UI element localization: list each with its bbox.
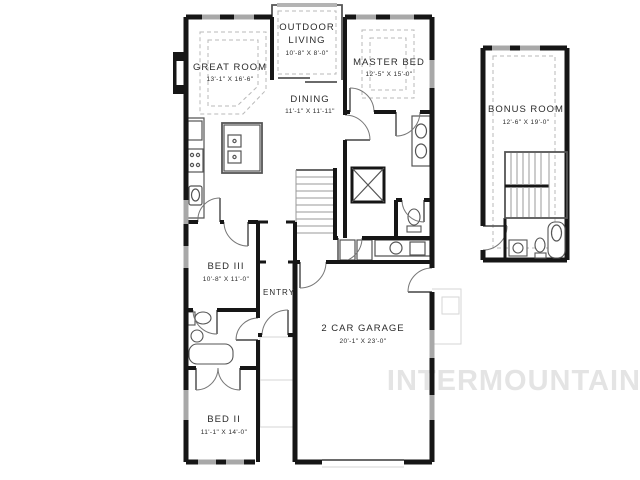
laundry-appliances <box>340 240 430 260</box>
kitchen-island <box>222 123 262 173</box>
room-dims-outdoor-living: 10'-8" X 8'-0" <box>285 50 328 57</box>
room-dims-great-room: 13'-1" X 16'-6" <box>206 76 253 83</box>
room-dims-bonus-room: 12'-6" X 19'-0" <box>502 119 549 126</box>
room-dims-master-bed: 12'-5" X 15'-0" <box>365 71 412 78</box>
room-label-outdoor-living-2: LIVING <box>288 35 325 46</box>
room-label-bed-2: BED II <box>207 414 240 425</box>
room-label-bonus-room: BONUS ROOM <box>488 104 564 115</box>
room-label-garage: 2 CAR GARAGE <box>321 323 404 334</box>
master-shower <box>352 168 384 202</box>
master-vanity <box>412 116 430 166</box>
bonus-stairs <box>505 152 567 218</box>
room-dims-garage: 20'-1" X 23'-0" <box>339 338 386 345</box>
watermark-text: INTERMOUNTAIN <box>387 365 640 397</box>
master-toilet-icon <box>407 209 421 232</box>
room-label-outdoor-living-1: OUTDOOR <box>279 22 335 33</box>
room-label-entry: ENTRY <box>263 288 295 297</box>
room-label-bed-3: BED III <box>207 261 244 272</box>
kitchen-counter <box>186 118 204 218</box>
floor-plan-image: INTERMOUNTAIN <box>0 0 640 480</box>
room-label-master-bed: MASTER BED <box>353 57 425 68</box>
room-label-great-room: GREAT ROOM <box>193 62 267 73</box>
main-stairs <box>296 170 335 238</box>
room-label-dining: DINING <box>290 94 329 105</box>
floor-plan-svg: INTERMOUNTAIN <box>0 0 640 480</box>
room-dims-bed-2: 11'-1" X 14'-0" <box>201 429 248 436</box>
room-dims-dining: 11'-1" X 11'-11" <box>285 108 335 115</box>
room-dims-bed-3: 10'-8" X 11'-0" <box>203 276 250 283</box>
bonus-bath-fixtures <box>509 222 565 258</box>
